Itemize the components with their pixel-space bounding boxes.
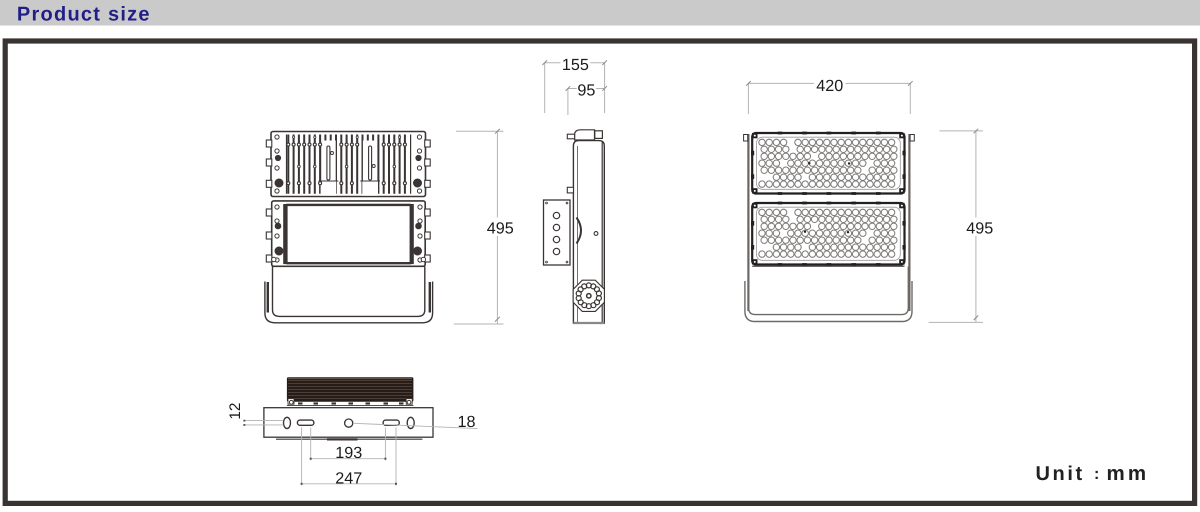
svg-text:420: 420 [816, 77, 843, 95]
svg-text:495: 495 [966, 219, 993, 237]
svg-text:95: 95 [577, 82, 595, 100]
svg-text:247: 247 [335, 470, 362, 488]
svg-text:12: 12 [227, 403, 244, 420]
svg-text:Product size: Product size [17, 4, 151, 26]
svg-text:193: 193 [335, 444, 362, 462]
svg-text::: : [1094, 466, 1099, 483]
svg-text:155: 155 [562, 56, 589, 74]
svg-text:mm: mm [1107, 462, 1150, 485]
svg-text:18: 18 [457, 413, 475, 431]
svg-text:Unit: Unit [1036, 463, 1085, 485]
svg-text:495: 495 [487, 219, 514, 237]
